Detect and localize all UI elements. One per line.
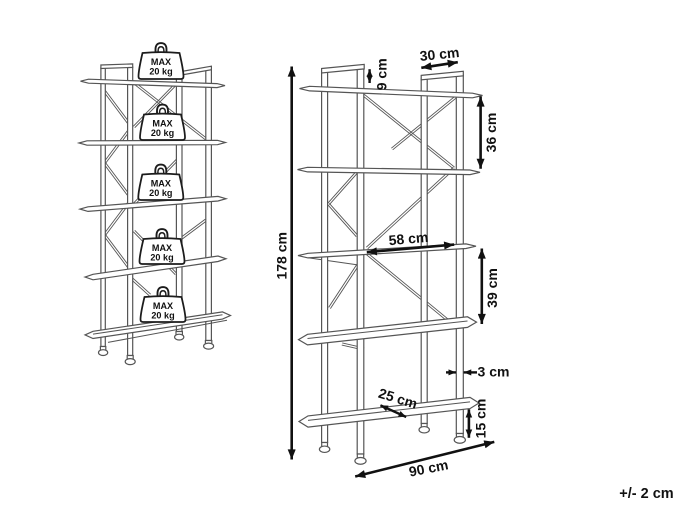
svg-text:20 kg: 20 kg — [151, 128, 174, 138]
svg-text:39 cm: 39 cm — [484, 268, 500, 308]
svg-text:3 cm: 3 cm — [478, 364, 510, 380]
svg-text:15 cm: 15 cm — [473, 399, 489, 439]
svg-text:+/- 2 cm: +/- 2 cm — [619, 486, 673, 502]
svg-text:20 kg: 20 kg — [149, 67, 172, 77]
svg-text:20 kg: 20 kg — [149, 188, 172, 198]
svg-text:36 cm: 36 cm — [483, 113, 499, 153]
svg-text:20 kg: 20 kg — [151, 311, 174, 321]
svg-text:9 cm: 9 cm — [373, 58, 389, 90]
svg-text:20 kg: 20 kg — [150, 253, 173, 263]
svg-text:178 cm: 178 cm — [273, 232, 289, 279]
